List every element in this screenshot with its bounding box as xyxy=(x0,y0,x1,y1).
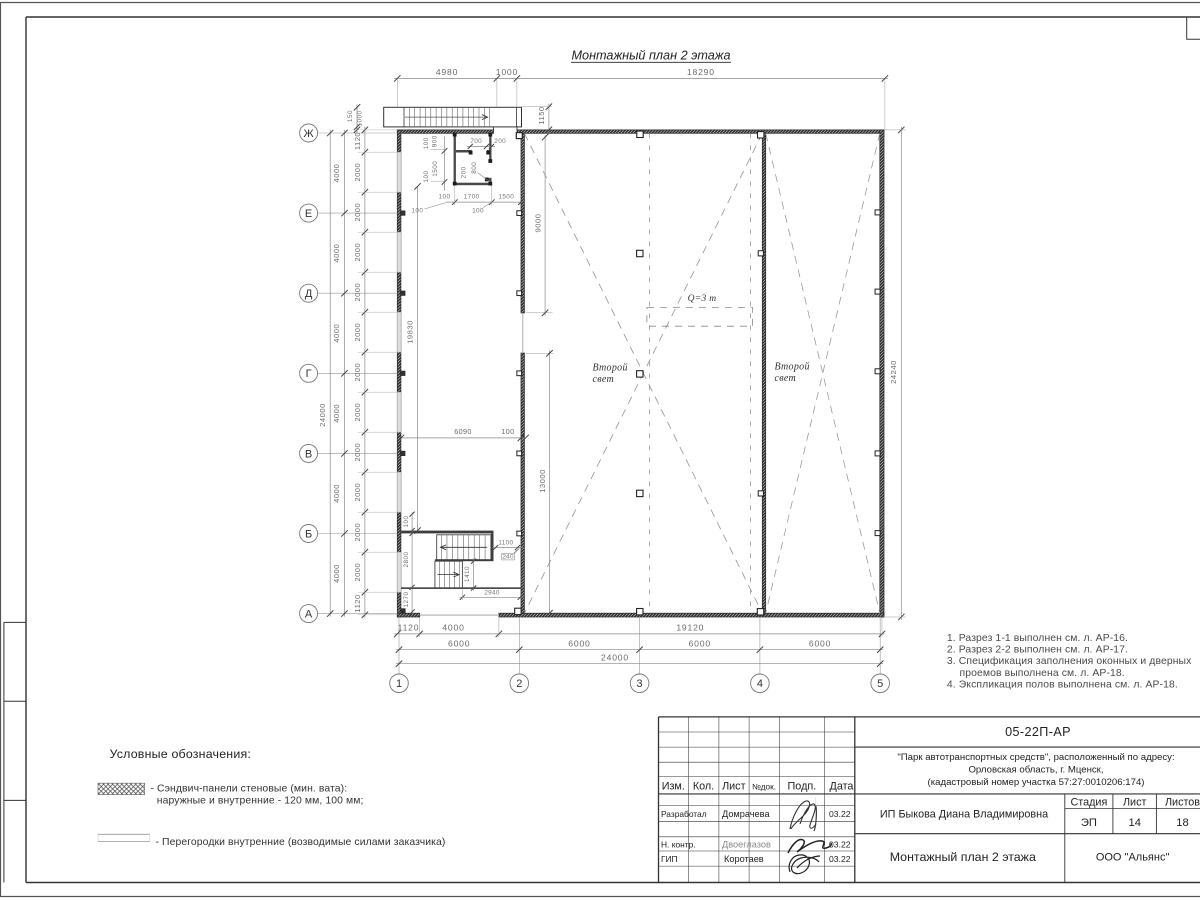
svg-text:2000: 2000 xyxy=(353,283,362,302)
svg-text:800: 800 xyxy=(471,162,478,174)
svg-text:03.22: 03.22 xyxy=(829,809,851,819)
svg-text:4000: 4000 xyxy=(332,404,341,423)
svg-text:200: 200 xyxy=(460,166,467,178)
svg-text:19830: 19830 xyxy=(406,320,415,344)
svg-text:6090: 6090 xyxy=(454,427,472,436)
svg-text:Лист: Лист xyxy=(722,780,746,792)
svg-text:14: 14 xyxy=(1128,817,1140,829)
svg-text:1000: 1000 xyxy=(496,67,518,77)
svg-text:свет: свет xyxy=(775,373,797,384)
svg-text:3: 3 xyxy=(637,678,643,690)
svg-text:2000: 2000 xyxy=(353,523,362,542)
svg-text:1120: 1120 xyxy=(353,594,362,612)
svg-text:ЭП: ЭП xyxy=(1081,817,1097,829)
svg-text:Кол.: Кол. xyxy=(693,780,714,792)
svg-text:200: 200 xyxy=(494,138,506,145)
svg-text:Q=3 т: Q=3 т xyxy=(688,294,717,304)
svg-text:- Перегородки внутренние (возв: - Перегородки внутренние (возводимые сил… xyxy=(156,837,446,848)
svg-text:Стадия: Стадия xyxy=(1070,796,1107,808)
svg-text:2940: 2940 xyxy=(484,589,500,596)
svg-text:1410: 1410 xyxy=(464,566,471,582)
svg-text:03.22: 03.22 xyxy=(829,854,851,864)
svg-text:1000: 1000 xyxy=(357,110,364,126)
svg-text:18: 18 xyxy=(1176,817,1188,829)
svg-text:2000: 2000 xyxy=(353,403,362,422)
svg-text:100: 100 xyxy=(439,193,451,200)
svg-text:2000: 2000 xyxy=(353,243,362,262)
svg-text:Н. контр.: Н. контр. xyxy=(661,839,696,849)
svg-text:Подп. и дата: Подп. и дата xyxy=(0,727,1,775)
svg-text:Подп.: Подп. xyxy=(788,780,817,792)
svg-text:ГИП: ГИП xyxy=(661,854,678,864)
svg-text:6000: 6000 xyxy=(568,639,590,649)
svg-text:Ж: Ж xyxy=(304,128,314,140)
svg-text:6000: 6000 xyxy=(689,639,711,649)
svg-text:9000: 9000 xyxy=(533,214,542,233)
svg-text:6000: 6000 xyxy=(809,639,831,649)
svg-text:наружные и внутренние - 120 мм: наружные и внутренние - 120 мм, 100 мм; xyxy=(157,796,364,807)
svg-text:1500: 1500 xyxy=(498,193,514,200)
svg-text:5: 5 xyxy=(877,678,883,690)
svg-text:4980: 4980 xyxy=(436,67,458,77)
svg-text:100: 100 xyxy=(423,170,430,182)
svg-text:Разработал: Разработал xyxy=(661,809,707,819)
svg-text:100: 100 xyxy=(423,137,430,149)
svg-text:1120: 1120 xyxy=(398,623,420,633)
svg-text:проемов выполнена см. л. АР-18: проемов выполнена см. л. АР-18. xyxy=(960,668,1125,679)
svg-text:Изм.: Изм. xyxy=(662,780,685,792)
svg-text:4000: 4000 xyxy=(332,324,341,343)
svg-text:3. Спецификация заполнения око: 3. Спецификация заполнения оконных и две… xyxy=(947,655,1192,667)
svg-text:2000: 2000 xyxy=(353,563,362,582)
svg-text:100: 100 xyxy=(411,207,423,214)
svg-text:№док.: №док. xyxy=(752,782,776,791)
svg-text:Коротаев: Коротаев xyxy=(724,854,764,864)
svg-text:Условные обозначения:: Условные обозначения: xyxy=(110,747,252,761)
svg-text:2000: 2000 xyxy=(353,443,362,462)
svg-text:2000: 2000 xyxy=(353,163,362,182)
svg-text:4000: 4000 xyxy=(332,484,341,503)
svg-text:1270: 1270 xyxy=(403,591,410,607)
svg-text:Монтажный план 2 этажа: Монтажный план 2 этажа xyxy=(572,47,731,62)
svg-text:Взам. инв. №: Взам. инв. № xyxy=(0,637,1,687)
svg-text:2000: 2000 xyxy=(353,363,362,382)
svg-text:"Парк автотранспортных средств: "Парк автотранспортных средств", располо… xyxy=(897,752,1174,763)
svg-text:2800: 2800 xyxy=(403,551,410,567)
svg-text:А: А xyxy=(305,609,313,621)
svg-text:1700: 1700 xyxy=(464,193,480,200)
svg-text:4000: 4000 xyxy=(332,564,341,583)
svg-text:1120: 1120 xyxy=(353,132,362,150)
svg-text:100: 100 xyxy=(501,427,514,436)
svg-text:2. Разрез 2-2 выполнен см. л.: 2. Разрез 2-2 выполнен см. л. АР-17. xyxy=(947,645,1128,656)
svg-text:13000: 13000 xyxy=(538,469,547,493)
svg-text:100: 100 xyxy=(472,208,484,215)
svg-text:03.22: 03.22 xyxy=(829,839,851,849)
svg-text:Листов: Листов xyxy=(1165,796,1200,808)
svg-text:1100: 1100 xyxy=(498,540,513,547)
svg-text:24000: 24000 xyxy=(318,403,327,427)
svg-text:24000: 24000 xyxy=(601,653,629,663)
svg-text:4: 4 xyxy=(757,678,763,690)
svg-text:ИП Быкова Диана Владимировна: ИП Быкова Диана Владимировна xyxy=(880,809,1048,821)
svg-text:Второй: Второй xyxy=(775,362,810,373)
svg-text:18290: 18290 xyxy=(687,67,715,77)
svg-text:1150: 1150 xyxy=(537,106,546,124)
svg-text:Дата: Дата xyxy=(830,780,854,792)
svg-text:Инв. № подл.: Инв. № подл. xyxy=(0,817,1,867)
svg-text:1500: 1500 xyxy=(432,161,439,177)
svg-text:Орловская область, г. Мценск,: Орловская область, г. Мценск, xyxy=(968,764,1103,775)
svg-text:Монтажный план 2 этажа: Монтажный план 2 этажа xyxy=(890,850,1036,864)
svg-text:1. Разрез 1-1 выполнен см. л.: 1. Разрез 1-1 выполнен см. л. АР-16. xyxy=(947,633,1128,644)
svg-text:свет: свет xyxy=(593,374,615,385)
svg-text:2000: 2000 xyxy=(353,483,362,502)
svg-text:Б: Б xyxy=(305,528,312,540)
svg-text:- Сэндвич-панели стеновые (мин: - Сэндвич-панели стеновые (мин. вата): xyxy=(151,783,348,794)
svg-text:150: 150 xyxy=(347,110,354,122)
svg-text:4000: 4000 xyxy=(332,164,341,183)
svg-text:19120: 19120 xyxy=(676,623,704,633)
svg-text:1: 1 xyxy=(396,678,402,690)
svg-text:Д: Д xyxy=(305,288,313,300)
svg-text:ООО "Альянс": ООО "Альянс" xyxy=(1096,852,1170,864)
svg-text:6000: 6000 xyxy=(448,639,470,649)
svg-text:(кадастровый номер участка 57:: (кадастровый номер участка 57:27:0010206… xyxy=(928,777,1145,788)
svg-text:2000: 2000 xyxy=(353,203,362,222)
svg-text:Домрачева: Домрачева xyxy=(722,809,770,819)
svg-text:4000: 4000 xyxy=(332,244,341,263)
svg-text:100: 100 xyxy=(403,515,410,527)
svg-text:24240: 24240 xyxy=(889,360,898,384)
svg-text:05-22П-АР: 05-22П-АР xyxy=(1005,725,1071,739)
svg-text:2000: 2000 xyxy=(353,323,362,342)
svg-text:900: 900 xyxy=(432,135,439,147)
svg-text:4. Экспликация полов выполнена: 4. Экспликация полов выполнена см. л. АР… xyxy=(947,680,1178,691)
svg-text:Г: Г xyxy=(306,368,312,380)
svg-text:Второй: Второй xyxy=(593,363,628,374)
svg-text:700: 700 xyxy=(470,138,482,145)
svg-text:2: 2 xyxy=(516,678,522,690)
svg-text:Е: Е xyxy=(305,208,312,220)
svg-text:Двоеглазов: Двоеглазов xyxy=(722,839,771,849)
svg-text:4000: 4000 xyxy=(442,623,464,633)
svg-text:В: В xyxy=(305,448,312,460)
svg-text:Лист: Лист xyxy=(1123,796,1147,808)
